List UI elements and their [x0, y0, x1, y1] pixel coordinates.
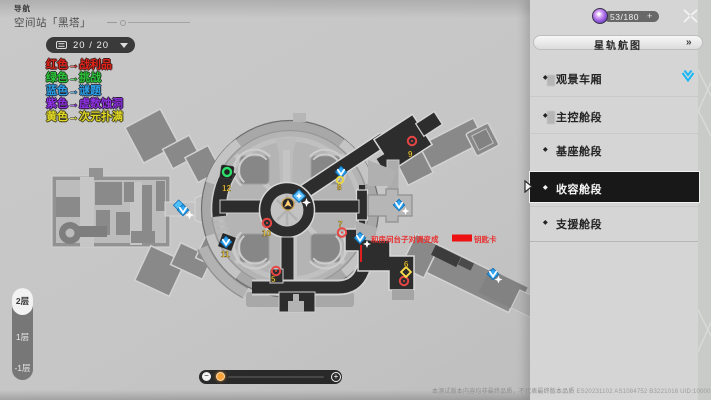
- svg-text:6: 6: [404, 260, 409, 269]
- svg-text:钥匙卡: 钥匙卡: [474, 234, 497, 244]
- svg-text:11: 11: [221, 250, 230, 259]
- svg-text:5: 5: [271, 275, 276, 284]
- svg-text:7: 7: [338, 220, 343, 229]
- svg-text:10: 10: [262, 229, 271, 238]
- svg-text:和房间台子对调变成: 和房间台子对调变成: [371, 234, 439, 244]
- svg-text:12: 12: [222, 184, 231, 193]
- svg-text:9: 9: [408, 150, 413, 159]
- svg-text:8: 8: [337, 183, 342, 192]
